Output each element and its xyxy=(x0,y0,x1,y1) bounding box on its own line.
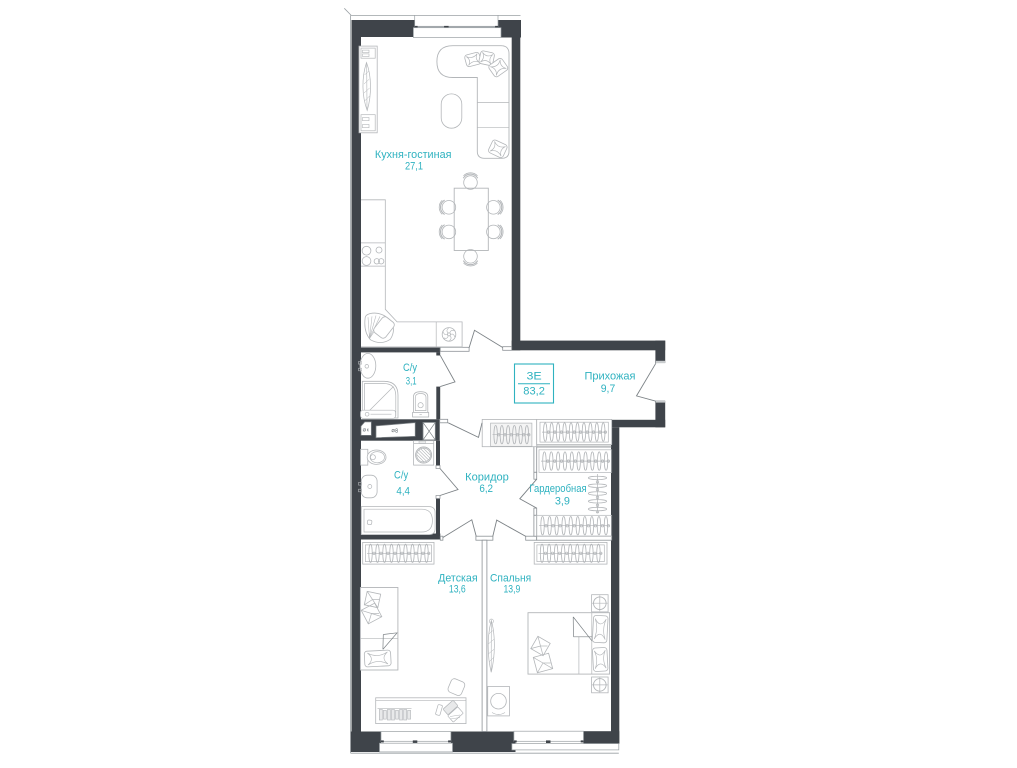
svg-text:Коридор: Коридор xyxy=(465,471,509,483)
svg-text:13,9: 13,9 xyxy=(504,584,521,596)
svg-text:6,2: 6,2 xyxy=(479,483,493,495)
svg-text:Детская: Детская xyxy=(438,572,478,584)
svg-text:27,1: 27,1 xyxy=(405,161,423,173)
svg-text:С/у: С/у xyxy=(394,470,409,482)
svg-text:9,7: 9,7 xyxy=(601,383,616,395)
svg-text:3Е: 3Е xyxy=(527,371,542,383)
svg-text:Кухня-гостиная: Кухня-гостиная xyxy=(375,149,452,161)
svg-text:83,2: 83,2 xyxy=(523,386,545,398)
svg-text:Прихожая: Прихожая xyxy=(585,371,636,383)
svg-text:С/у: С/у xyxy=(403,362,418,374)
svg-text:Гардеробная: Гардеробная xyxy=(529,483,586,495)
svg-text:4,4: 4,4 xyxy=(396,486,410,498)
svg-text:3,9: 3,9 xyxy=(555,495,570,507)
svg-text:13,6: 13,6 xyxy=(449,584,466,596)
svg-text:Спальня: Спальня xyxy=(490,572,531,584)
svg-text:3,1: 3,1 xyxy=(406,376,417,388)
